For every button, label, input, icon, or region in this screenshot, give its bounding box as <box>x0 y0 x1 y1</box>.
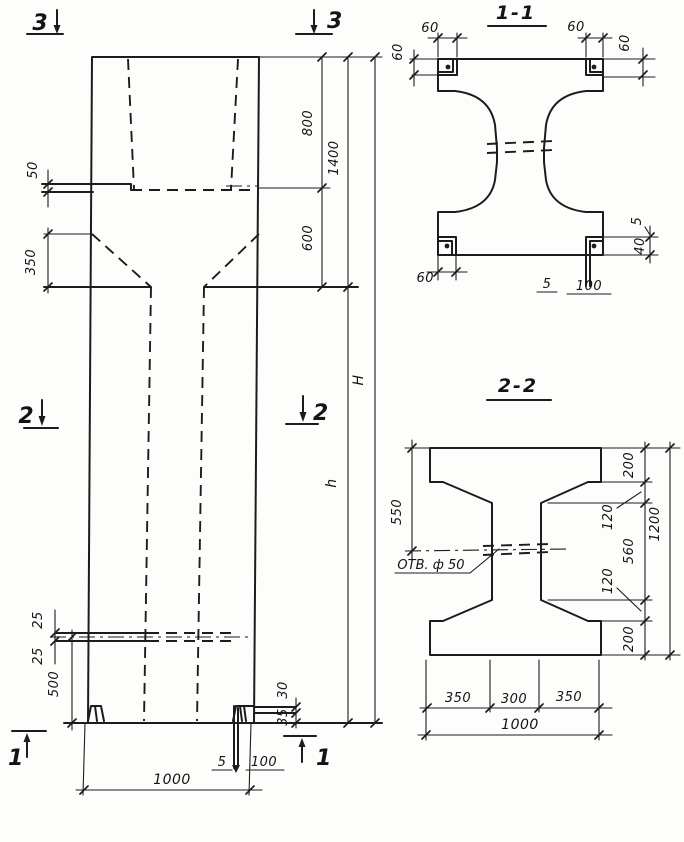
section-marker-3-left: 3 <box>27 10 63 36</box>
dim-60-left-label: 60 <box>391 43 406 61</box>
elevation-view: 3 3 2 2 1 1 50 35 <box>8 9 382 795</box>
section-marker-3-right: 3 <box>296 9 342 34</box>
dim-100-bottom-label: 100 <box>576 279 602 294</box>
marker-2-left-arrow <box>39 416 46 426</box>
dim-5-bottom-label: 5 <box>543 277 552 292</box>
hidden-web-lines <box>144 287 204 721</box>
dim-560-label: 560 <box>622 538 637 564</box>
dim-800-label: 800 <box>301 110 316 136</box>
dim-1000-label: 1000 <box>153 772 191 788</box>
marker-1-left-label: 1 <box>8 746 23 771</box>
marker-1-right-label: 1 <box>316 746 331 771</box>
foot-leg-arrow <box>232 765 240 773</box>
dim-500-label: 500 <box>47 671 62 697</box>
ledge-lines <box>42 184 131 192</box>
dim-350-left-label: 350 <box>445 691 471 706</box>
hole-label: ОТВ. ф 50 <box>397 558 464 573</box>
marker-1-left-arrow <box>24 733 31 742</box>
marker-2-right-label: 2 <box>313 401 328 426</box>
section-2-2-title: 2-2 <box>498 375 538 397</box>
hidden-haunch-lines <box>92 234 259 287</box>
dim-60-tl-label: 60 <box>421 21 439 36</box>
marker-2-left-label: 2 <box>18 404 33 429</box>
drawing-sheet: 3 3 2 2 1 1 50 35 <box>0 0 684 842</box>
marker-2-right-arrow <box>300 412 307 422</box>
dim-300-label: 300 <box>501 692 527 707</box>
dim-25-bottom-label: 25 <box>31 647 46 665</box>
anchor-dot-tr <box>592 65 597 70</box>
dim-60-bl-label: 60 <box>416 271 434 286</box>
anchor-dot-bl <box>445 244 450 249</box>
marker-3-left-label: 3 <box>32 11 47 36</box>
centerlines <box>50 186 259 637</box>
section-marker-1-right: 1 <box>284 736 331 771</box>
hole-centerline-2-2 <box>405 549 567 551</box>
dim-1400-label: 1400 <box>327 140 342 175</box>
dim-25-top-label: 25 <box>31 611 46 629</box>
marker-3-right-arrow <box>311 25 318 34</box>
dim-1200-label: 1200 <box>648 506 663 541</box>
dim-100-label: 100 <box>251 755 277 770</box>
section-1-1-dim-ticks <box>410 34 654 276</box>
dim-40-right-label: 40 <box>633 237 648 255</box>
dim-200-top-label: 200 <box>622 452 637 478</box>
dim-60-tr-label: 60 <box>567 20 585 35</box>
dim-60-right-label: 60 <box>618 34 633 52</box>
marker-1-right-line <box>284 736 316 762</box>
section-marker-2-left: 2 <box>18 400 58 429</box>
section-1-1-outline <box>438 59 603 255</box>
left-foot <box>88 706 104 721</box>
section-2-2: 2-2 ОТВ. ф 50 550 200 120 560 120 200 12… <box>390 375 680 740</box>
dim-35-label: 35 <box>276 708 291 726</box>
dim-1000-bottom-label: 1000 <box>501 717 539 733</box>
marker-1-right-arrow <box>299 738 306 747</box>
dim-350-right-label: 350 <box>556 690 582 705</box>
dim-550-label: 550 <box>390 499 405 525</box>
hidden-recess-lines <box>128 59 252 190</box>
anchor-dot-tl <box>446 65 451 70</box>
dim-120-top-label: 120 <box>601 504 616 530</box>
marker-3-right-label: 3 <box>327 9 342 34</box>
section-2-2-outline <box>430 448 601 655</box>
marker-3-left-arrow <box>54 25 61 34</box>
dim-h-label: h <box>324 478 340 487</box>
technical-drawing: 3 3 2 2 1 1 50 35 <box>0 0 684 842</box>
dim-30-label: 30 <box>276 681 291 699</box>
section-1-1-title: 1-1 <box>496 2 536 24</box>
anchor-dot-br <box>592 244 597 249</box>
dim-120-bottom-label: 120 <box>601 568 616 594</box>
dim-600-label: 600 <box>301 225 316 251</box>
dim-350-label: 350 <box>24 249 39 275</box>
dim-200-bottom-label: 200 <box>622 626 637 652</box>
dim-5-label: 5 <box>218 755 227 770</box>
section-1-1: 1-1 60 60 60 60 60 5 100 5 40 <box>391 2 658 294</box>
section-marker-1-left: 1 <box>8 731 46 771</box>
dim-50-label: 50 <box>26 161 41 179</box>
section-marker-2-right: 2 <box>286 396 328 426</box>
dim-5-right-label: 5 <box>630 217 645 226</box>
dim-H-label: H <box>351 374 367 385</box>
